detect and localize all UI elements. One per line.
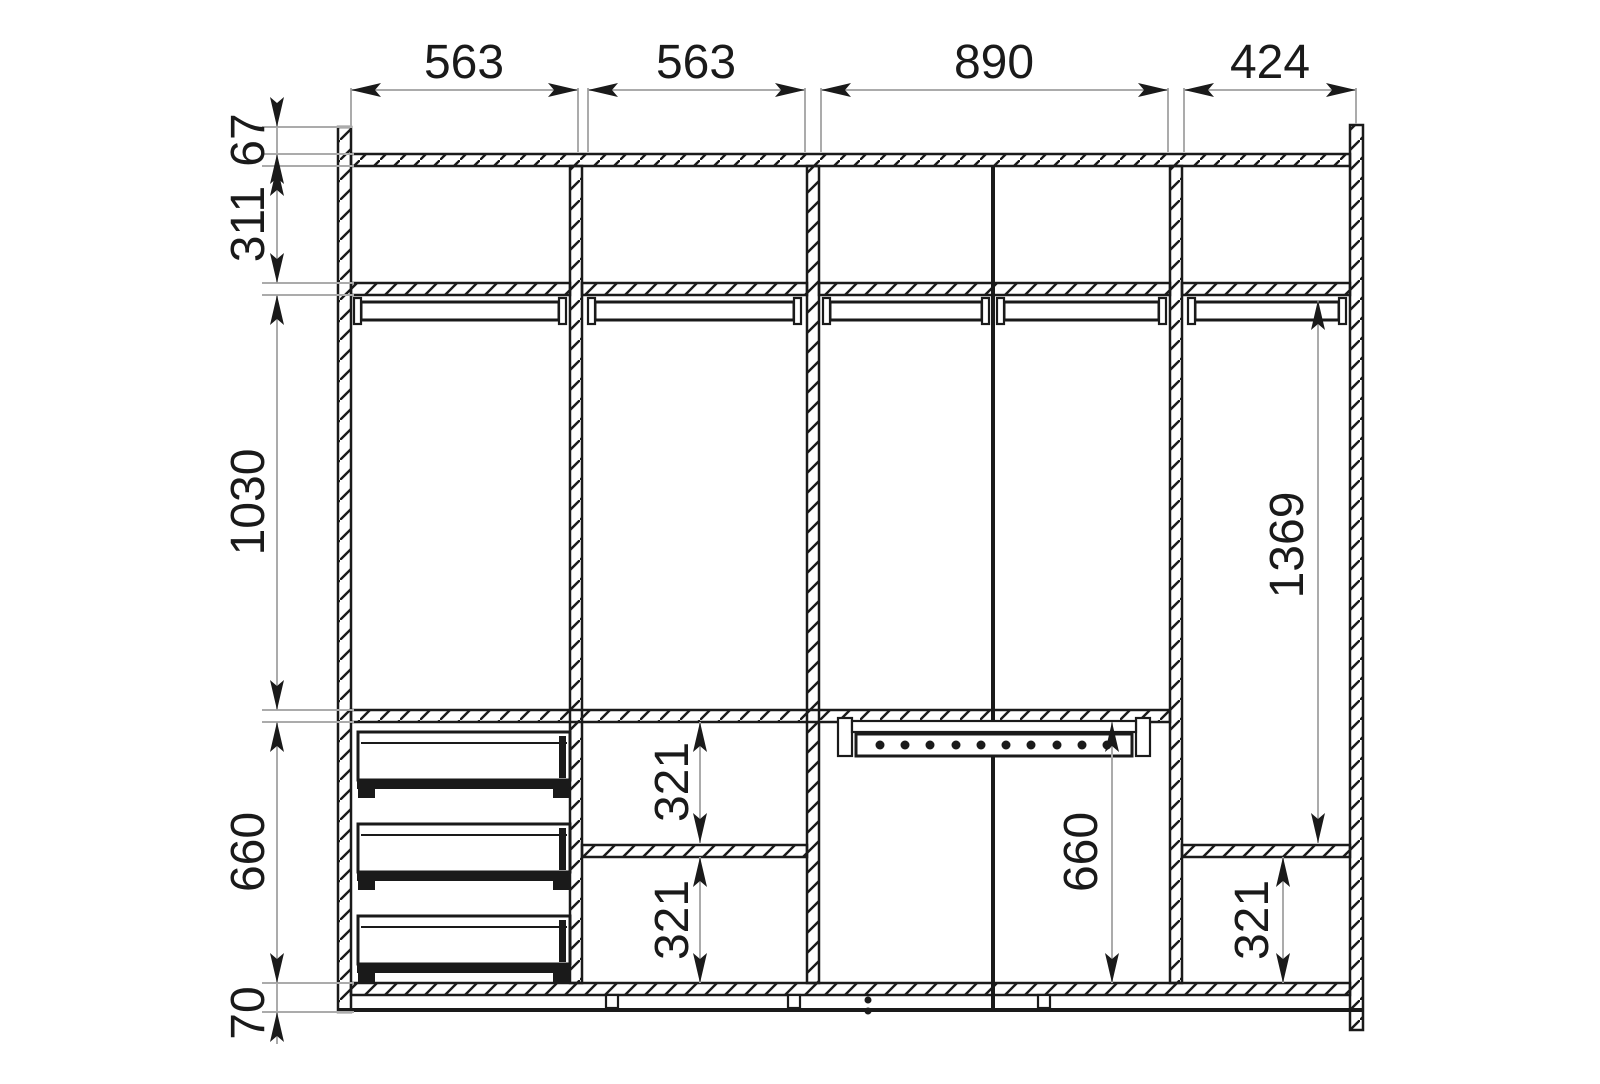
dim-left-height-3: 1030 bbox=[222, 449, 275, 556]
dim-col4-tall: 1369 bbox=[1261, 492, 1314, 599]
drawer-2 bbox=[357, 824, 571, 890]
dim-left-height-2: 311 bbox=[222, 186, 275, 263]
top-shelf bbox=[351, 154, 1350, 166]
wardrobe-structure bbox=[338, 125, 1363, 1030]
trouser-rail-bracket-right bbox=[1136, 718, 1150, 756]
center-partition bbox=[991, 166, 995, 1012]
trouser-rail-plate bbox=[852, 721, 1136, 732]
dimension-labels: 563 563 890 424 67 311 1030 660 70 321 3… bbox=[222, 36, 1314, 1040]
right-side-panel bbox=[1350, 125, 1363, 1030]
dim-col2-lower: 321 bbox=[646, 880, 699, 960]
drawer-1 bbox=[357, 732, 571, 798]
dim-left-height-4: 660 bbox=[222, 812, 275, 892]
hanger-rails bbox=[354, 298, 1346, 324]
dim-top-width-4: 424 bbox=[1230, 36, 1310, 89]
plinth-support-1 bbox=[606, 995, 618, 1008]
dim-top-width-1: 563 bbox=[424, 36, 504, 89]
bottom-shelf bbox=[351, 983, 1350, 995]
wardrobe-elevation-drawing: 563 563 890 424 67 311 1030 660 70 321 3… bbox=[0, 0, 1600, 1084]
second-shelf-col4 bbox=[1182, 283, 1350, 295]
hanger-rail-col2 bbox=[588, 298, 801, 324]
mid-shelf-col2 bbox=[582, 845, 807, 857]
dim-top-width-2: 563 bbox=[656, 36, 736, 89]
drawer-3 bbox=[357, 916, 571, 982]
plinth-support-3 bbox=[1038, 995, 1050, 1008]
left-side-panel bbox=[338, 127, 351, 1012]
trouser-rail-bracket-left bbox=[838, 718, 852, 756]
second-shelf-col1 bbox=[351, 283, 570, 295]
divider-2 bbox=[807, 166, 819, 983]
plinth-support-2 bbox=[788, 995, 800, 1008]
drawer-stack bbox=[357, 732, 571, 982]
base-line bbox=[338, 1008, 1363, 1012]
fitting-dot-bottom bbox=[865, 1008, 872, 1015]
dim-col3-lower: 660 bbox=[1055, 812, 1108, 892]
trouser-rail bbox=[838, 718, 1150, 756]
divider-1 bbox=[570, 166, 582, 983]
dim-col4-lower: 321 bbox=[1226, 880, 1279, 960]
dim-col2-upper: 321 bbox=[646, 742, 699, 822]
fitting-dot-top bbox=[865, 997, 872, 1004]
divider-3 bbox=[1170, 166, 1182, 983]
hanger-rail-col3-right bbox=[997, 298, 1166, 324]
dim-left-height-5: 70 bbox=[222, 986, 275, 1039]
technical-drawing-canvas: 563 563 890 424 67 311 1030 660 70 321 3… bbox=[0, 0, 1600, 1084]
dim-top-width-3: 890 bbox=[954, 36, 1034, 89]
dim-left-height-1: 67 bbox=[222, 113, 275, 166]
trouser-rail-bar bbox=[856, 734, 1132, 756]
second-shelf-col2 bbox=[582, 283, 807, 295]
hanger-rail-col1 bbox=[354, 298, 566, 324]
hanger-rail-col3-left bbox=[823, 298, 989, 324]
mid-shelf-col4 bbox=[1182, 845, 1350, 857]
